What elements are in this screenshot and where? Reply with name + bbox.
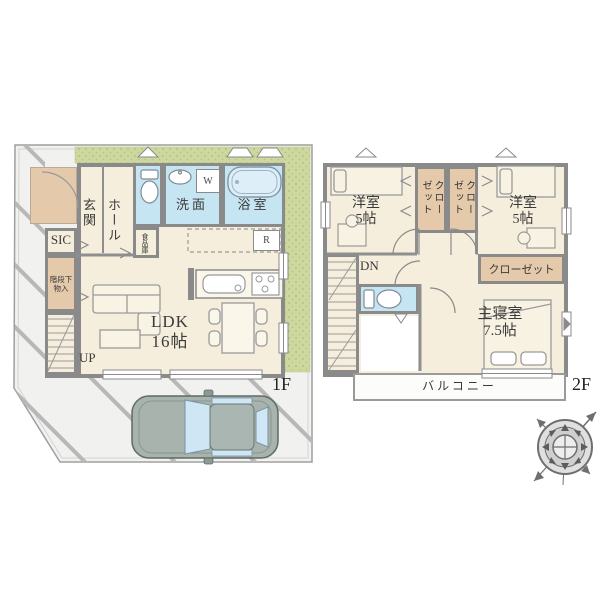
bedroom-right-label: 洋室 5帖 [493,196,553,228]
master-bedroom-label: 主寝室 7.5帖 [452,306,548,341]
compass-icon [534,412,596,485]
kitchen-island-icon [196,270,283,298]
floor2-label: 2F [572,374,591,395]
toilet-door-mark [395,314,407,323]
ldk-label: LDK 16帖 [132,312,208,351]
toilet-icon-1f [141,170,158,203]
car-illustration [132,390,278,464]
bathtub-icon [228,167,281,197]
bedroom-left-label: 洋室 5帖 [336,196,396,228]
sic-label: SIC [45,233,77,248]
fixtures-graphics [0,0,600,600]
desk-icon-right [518,228,555,248]
sink-icon [169,170,191,184]
closet-master-label: クローゼット [489,261,555,277]
stairs-down-label: DN [360,259,379,274]
door-arcs-2f [393,229,477,313]
washroom-label: 洗面 [164,198,220,213]
room-closet-master: クローゼット [478,254,565,284]
hall-label: ホール [105,188,120,252]
bed-icon-right [497,166,555,197]
under-stair-label: 階段下 物入 [45,275,77,293]
bathroom-label: 浴室 [225,198,282,213]
dining-table-icon [209,303,267,353]
washer-box: W [196,169,220,193]
pantry-label: 食品庫 [141,230,149,256]
floorplan-page: クローゼット クローゼット クローゼット バルコニー [0,0,600,600]
fridge-box: R [253,230,280,251]
toilet-icon-2f [364,290,401,308]
entrance-label: 玄関 [80,190,95,236]
floor1-label: 1F [272,374,291,395]
stairs-up-label: UP [79,351,96,366]
stairs-1f-treads [47,315,75,371]
bed-icon-left [331,167,402,195]
door-arc-entrance [42,172,78,208]
opening-chevrons-2f [401,176,492,216]
stairs-2f-treads [327,258,357,370]
